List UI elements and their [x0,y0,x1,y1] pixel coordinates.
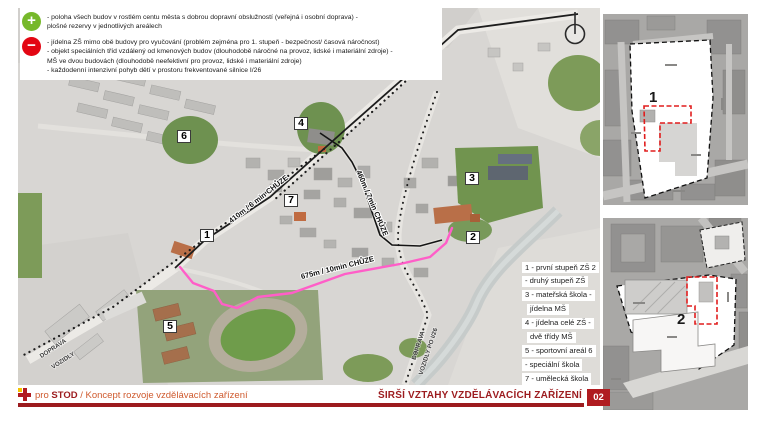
list-item: dvě třídy MŠ [527,332,576,343]
plus-icon: + [22,12,41,31]
cons-text: - jídelna ZŠ mimo obě budovy pro vyučová… [47,37,393,76]
panel-1-number: 1 [649,89,657,106]
document-subtitle: pro STOD / Koncept rozvoje vzdělávacích … [35,390,248,401]
pros-text: - poloha všech budov v rostlém centu měs… [47,12,358,32]
map-marker-7: 7 [284,194,298,207]
list-item: jídelna MŠ [527,304,569,315]
cons-line: - jídelna ZŠ mimo obě budovy pro vyučová… [47,38,393,47]
list-item: 7 - umělecká škola [522,373,591,384]
cons-line: - objekt speciálních tříd vzdálený od km… [47,47,393,56]
page-number-badge: 02 [587,389,610,406]
list-item: 5 - sportovní areál 6 [522,345,596,356]
pros-line: plošné rezervy v jednotlivých areálech [47,22,358,31]
panel-2-number: 2 [677,311,685,328]
list-item: - speciální škola [522,359,582,370]
list-item: - druhý stupeň ZŠ [522,276,588,287]
list-item: 1 - první stupeň ZŠ 2 [522,262,599,273]
map-marker-1: 1 [200,229,214,242]
brand-rest: / Koncept rozvoje vzdělávacích zařízení [80,390,247,401]
cons-line: - každodenní intenzivní pohyb dětí v pro… [47,66,393,75]
footer-rule [18,403,584,407]
sheet-title: ŠIRŠÍ VZTAHY VZDĚLÁVACÍCH ZAŘÍZENÍ [300,390,582,401]
map-marker-2: 2 [466,231,480,244]
cons-line: MŠ ve dvou budovách (dlouhodobě neefekti… [47,57,393,66]
map-key-list: 1 - první stupeň ZŠ 2 - druhý stupeň ZŠ … [522,262,614,387]
pros-cons-legend: + - poloha všech budov v rostlém centu m… [20,6,442,80]
brand-name: STOD [51,390,77,401]
list-item: 4 - jídelna celé ZŠ - [522,318,594,329]
concept-sheet: 410m / 6 min CHŮZE 460m / 7min CHŮZE 675… [0,0,768,432]
cons-row: − - jídelna ZŠ mimo obě budovy pro vyučo… [22,37,438,76]
map-marker-6: 6 [177,130,191,143]
pros-row: + - poloha všech budov v rostlém centu m… [22,12,438,32]
list-item: 3 - mateřská škola - [522,290,595,301]
map-marker-5: 5 [163,320,177,333]
detail-plan-2: 2 [603,218,748,410]
map-marker-3: 3 [465,172,479,185]
map-marker-4: 4 [294,117,308,130]
prostod-logo [18,388,31,401]
brand-pre: pro [35,390,49,401]
pros-line: - poloha všech budov v rostlém centu měs… [47,13,358,22]
minus-icon: − [22,37,41,56]
detail-plan-1: 1 [603,14,748,205]
